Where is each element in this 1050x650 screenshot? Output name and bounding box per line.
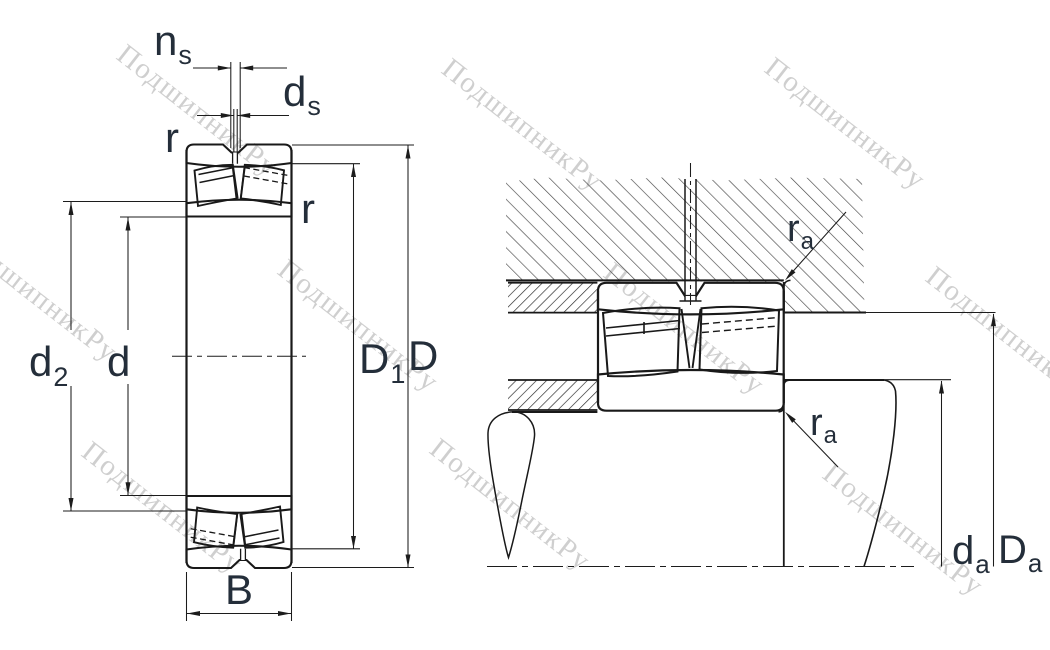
- watermark-text: ПодшипникРу: [76, 435, 249, 580]
- label-ds: ds: [283, 68, 321, 121]
- outer-abutment-ring: [508, 283, 597, 313]
- inner-abutment-ring: [508, 380, 597, 410]
- watermark-text: ПодшипникРу: [436, 52, 609, 197]
- watermark-text: ПодшипникРу: [759, 51, 932, 196]
- label-d2: d2: [29, 338, 68, 392]
- watermark-text: ПодшипникРу: [424, 432, 597, 577]
- label-Da: Da: [998, 528, 1043, 578]
- label-r-outer: r: [165, 114, 179, 161]
- label-r-inner: r: [301, 185, 315, 232]
- bearing-side-faces: [187, 150, 292, 563]
- bearing-technical-drawing: ПодшипникРу ПодшипникРу ПодшипникРу Подш…: [0, 0, 1050, 650]
- label-da: da: [952, 529, 990, 579]
- label-ra-bottom: ra: [810, 402, 838, 449]
- watermark-layer: ПодшипникРу ПодшипникРу ПодшипникРу Подш…: [0, 38, 1050, 602]
- label-d: d: [107, 338, 130, 385]
- label-D: D: [408, 332, 438, 379]
- watermark-text: ПодшипникРу: [111, 38, 284, 183]
- label-ns: ns: [154, 17, 192, 70]
- label-B: B: [225, 566, 253, 613]
- drawing-canvas: ПодшипникРу ПодшипникРу ПодшипникРу Подш…: [0, 0, 1050, 650]
- dimension-Da: [991, 313, 996, 566]
- watermark-text: ПодшипникРу: [920, 260, 1050, 405]
- watermark-text: ПодшипникРу: [0, 223, 124, 368]
